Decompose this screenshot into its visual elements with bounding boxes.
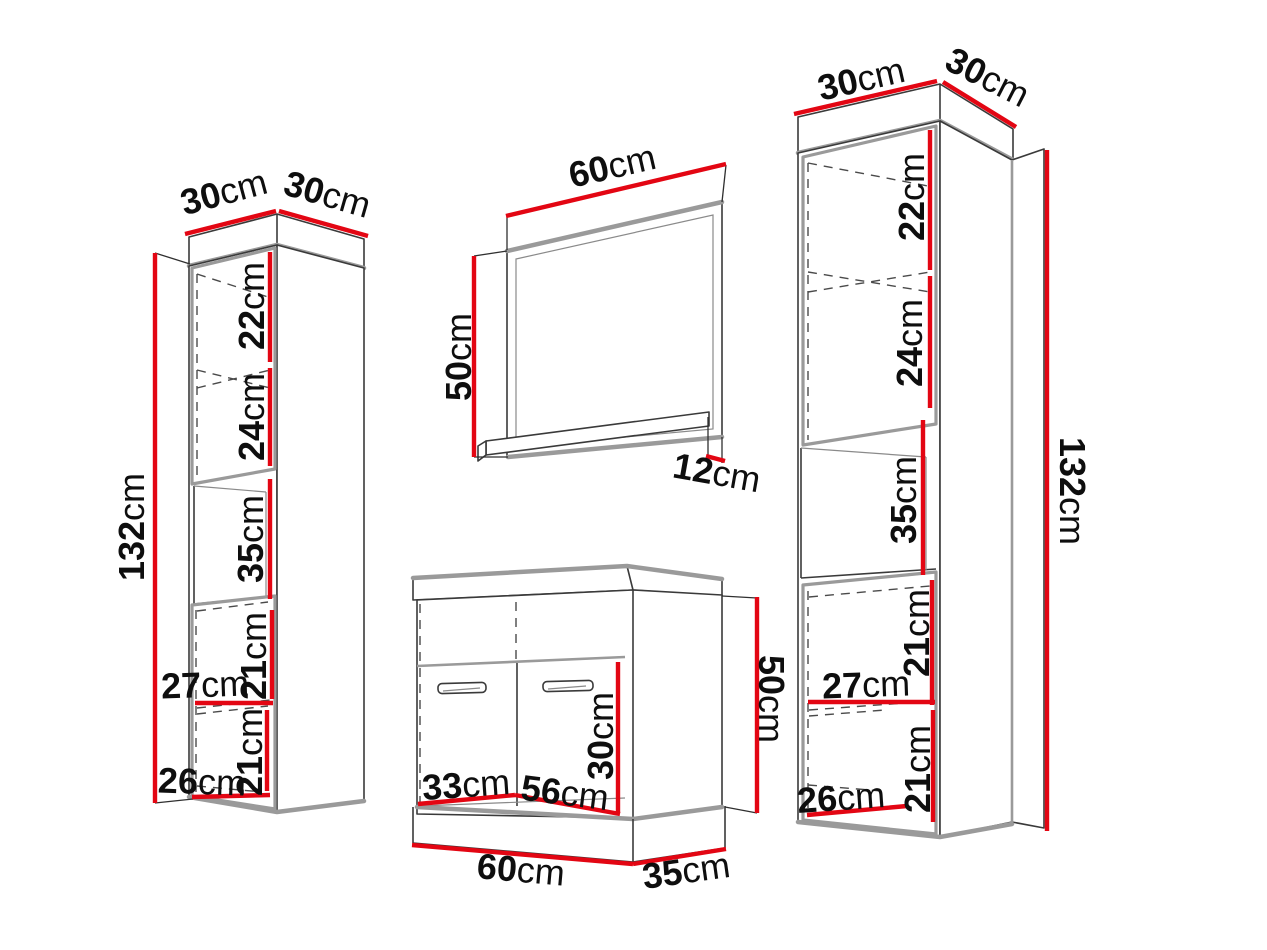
dim-label-height-50: 50cm bbox=[751, 655, 792, 743]
dim-label-21-lower: 21cm bbox=[897, 725, 938, 813]
cabinet-right-side-strip bbox=[1012, 149, 1044, 828]
dim-label-shelf-22: 22cm bbox=[231, 262, 272, 350]
washbasin-cabinet: 30cm 33cm 56cm 60cm 35cm 50cm bbox=[412, 566, 792, 897]
door-handle-left bbox=[438, 682, 486, 693]
extension-line bbox=[474, 251, 507, 256]
dim-label-niche-35: 35cm bbox=[883, 456, 924, 544]
dim-label-inner-33: 33cm bbox=[421, 761, 512, 808]
door-handle-right bbox=[543, 680, 593, 691]
dim-label-width-60: 60cm bbox=[565, 136, 660, 196]
extension-line bbox=[155, 253, 190, 264]
dim-label-depth-35: 35cm bbox=[640, 844, 733, 897]
dim-label-width-27: 27cm bbox=[821, 662, 910, 706]
extension-line bbox=[725, 807, 757, 813]
dim-label-shelf-12: 12cm bbox=[670, 445, 764, 501]
extension-line bbox=[722, 165, 726, 202]
mirror-with-shelf: 60cm 50cm 12cm bbox=[438, 136, 764, 500]
extension-line bbox=[722, 596, 757, 598]
dim-label-niche-35: 35cm bbox=[230, 495, 271, 583]
cabinet-front-face bbox=[277, 245, 364, 812]
dim-label-width-26: 26cm bbox=[157, 759, 246, 803]
dim-label-shelf-22: 22cm bbox=[891, 153, 932, 241]
dim-label-width-26: 26cm bbox=[796, 774, 887, 821]
dim-label-height: 132cm bbox=[111, 473, 152, 581]
dim-label-door-30: 30cm bbox=[580, 692, 621, 780]
mirror-shelf-end-cap bbox=[478, 441, 486, 461]
cabinet-front-face bbox=[940, 121, 1012, 837]
dim-label-height-50: 50cm bbox=[438, 313, 479, 401]
dim-label-width-60: 60cm bbox=[475, 845, 566, 894]
left-tall-cabinet: 30cm 30cm 132cm 22cm 24cm 35cm 21cm 27cm… bbox=[111, 161, 375, 812]
dim-label-height: 132cm bbox=[1052, 437, 1093, 545]
right-tall-cabinet: 30cm 30cm 132cm 22cm 24cm 35cm 21cm 27cm… bbox=[794, 39, 1093, 837]
dim-label-shelf-24: 24cm bbox=[889, 299, 930, 387]
furniture-dimension-diagram: 30cm 30cm 132cm 22cm 24cm 35cm 21cm 27cm… bbox=[0, 0, 1267, 950]
dim-label-width-27: 27cm bbox=[160, 662, 249, 706]
diagram-canvas: 30cm 30cm 132cm 22cm 24cm 35cm 21cm 27cm… bbox=[0, 0, 1267, 950]
dim-label-shelf-24: 24cm bbox=[231, 373, 272, 461]
